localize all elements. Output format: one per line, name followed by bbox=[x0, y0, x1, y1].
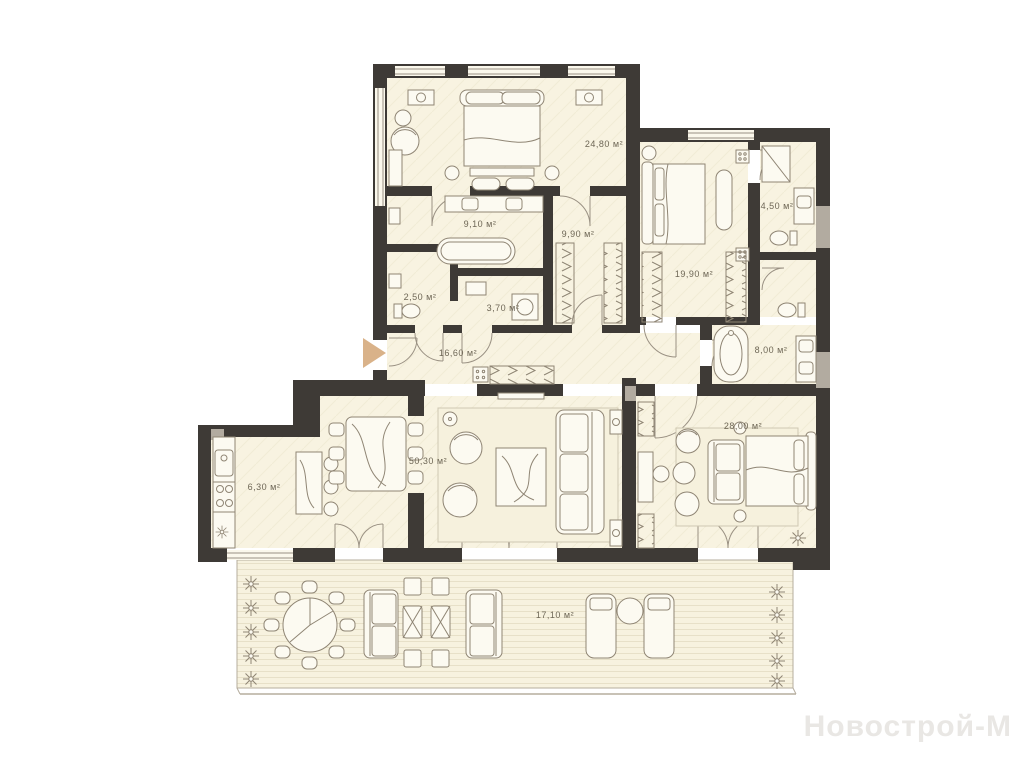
area-label-bedroom-third: 28,00 м² bbox=[724, 421, 762, 431]
area-label-bedroom-second: 19,90 м² bbox=[675, 269, 713, 279]
area-label-hallway: 16,60 м² bbox=[439, 348, 477, 358]
watermark: Новострой-М bbox=[804, 710, 1012, 744]
area-label-kitchen: 6,30 м² bbox=[248, 482, 281, 492]
area-label-bathroom-second: 4,50 м² bbox=[761, 201, 794, 211]
floor-plan-drawing bbox=[0, 0, 1024, 768]
area-label-wc: 2,50 м² bbox=[404, 292, 437, 302]
area-label-bedroom-master: 24,80 м² bbox=[585, 139, 623, 149]
entrance-arrow-icon bbox=[363, 338, 386, 368]
area-label-terrace: 17,10 м² bbox=[536, 610, 574, 620]
area-label-living-dining: 50,30 м² bbox=[409, 456, 447, 466]
area-label-bathroom-third: 8,00 м² bbox=[755, 345, 788, 355]
area-label-wardrobe: 9,90 м² bbox=[562, 229, 595, 239]
area-label-laundry: 3,70 м² bbox=[487, 303, 520, 313]
area-label-bathroom-master: 9,10 м² bbox=[464, 219, 497, 229]
floor-plan-canvas: 24,80 м² 9,10 м² 9,90 м² 2,50 м² 3,70 м²… bbox=[0, 0, 1024, 768]
